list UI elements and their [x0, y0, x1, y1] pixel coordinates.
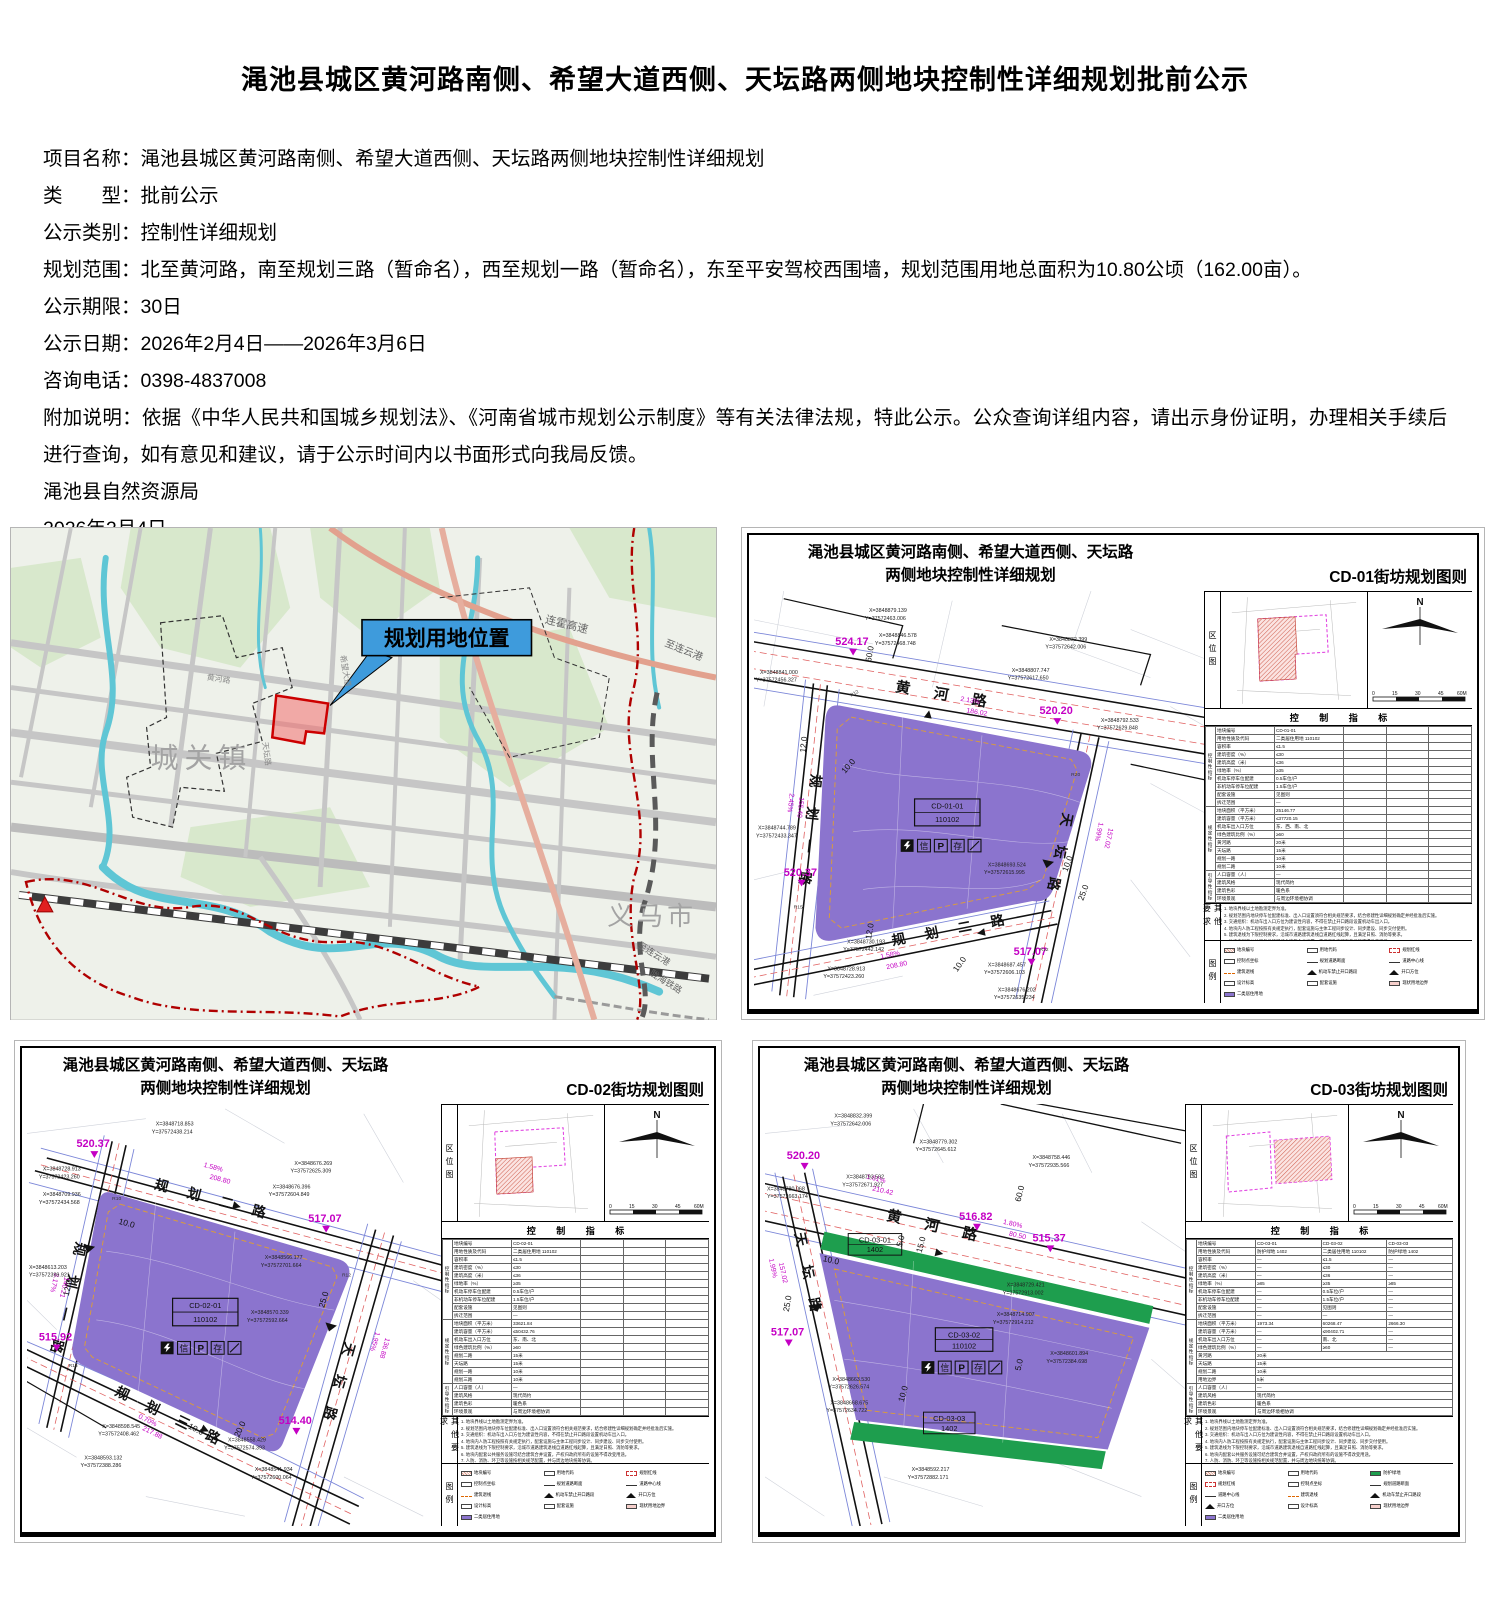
svg-text:Y=37572935.566: Y=37572935.566: [1028, 1163, 1069, 1169]
cd03-map: 黄 河 路 天 坛 路 CD-03-01 1402 CD-03-02 11010…: [765, 1104, 1185, 1526]
svg-text:Y=37572914.212: Y=37572914.212: [993, 1320, 1034, 1326]
svg-text:信: 信: [920, 840, 929, 851]
north-arrow-icon: N: [1353, 1108, 1449, 1160]
svg-text:0: 0: [1353, 1204, 1356, 1210]
location-map: 规划用地位置 城关镇 义马市 连霍高速 至连云港 至连云港 陇海铁路 黄河路 希…: [11, 528, 716, 1020]
svg-text:X=3848779.302: X=3848779.302: [920, 1139, 958, 1145]
svg-text:Y=37572606.103: Y=37572606.103: [984, 970, 1025, 976]
svg-text:N: N: [1416, 597, 1423, 608]
svg-text:存: 存: [974, 1362, 983, 1373]
svg-text:X=3848601.894: X=3848601.894: [1050, 1351, 1088, 1357]
svg-text:10.0: 10.0: [951, 954, 969, 973]
svg-text:Y=37572642.006: Y=37572642.006: [1045, 645, 1086, 651]
svg-text:Y=37572600.064: Y=37572600.064: [251, 1475, 292, 1481]
svg-text:Y=37572626.574: Y=37572626.574: [828, 1385, 869, 1391]
notice-block: 渑池县城区黄河路南侧、希望大道西侧、天坛路两侧地块控制性详细规划批前公示 项目名…: [43, 58, 1447, 548]
svg-text:P: P: [958, 1363, 965, 1374]
cd02-map: 规 划 二 路 规 划 一 路 天 坛 路 规 划 三 路 CD-02-01 1…: [27, 1104, 441, 1526]
svg-text:Y=37572645.612: Y=37572645.612: [916, 1147, 957, 1153]
svg-text:X=3848832.399: X=3848832.399: [834, 1114, 872, 1120]
svg-text:5.0: 5.0: [894, 1234, 907, 1248]
inset-label: 区位图: [1205, 592, 1221, 708]
svg-text:R15: R15: [794, 905, 803, 911]
svg-text:12.0: 12.0: [863, 922, 876, 940]
svg-text:Y=37572438.214: Y=37572438.214: [152, 1129, 193, 1135]
svg-text:X=3848598.545: X=3848598.545: [102, 1424, 140, 1430]
control-table: 控 制 指 标 控制性指标地块编号CD-01-01 用地性质及代码二类居住用地 …: [1205, 709, 1472, 904]
svg-text:45: 45: [1419, 1204, 1425, 1210]
svg-text:1.99%: 1.99%: [767, 1258, 778, 1278]
svg-text:Y=37572663.174: Y=37572663.174: [767, 1194, 808, 1200]
svg-text:30: 30: [1415, 691, 1421, 697]
road-label-huanghe: 黄 河 路: [894, 678, 998, 713]
svg-text:X=3848613.203: X=3848613.203: [29, 1265, 67, 1271]
svg-text:存: 存: [213, 1342, 222, 1353]
svg-text:信: 信: [180, 1342, 189, 1353]
svg-text:110102: 110102: [935, 815, 959, 824]
svg-text:R12: R12: [1039, 947, 1048, 953]
svg-text:Y=37572629.848: Y=37572629.848: [1097, 726, 1138, 732]
svg-text:X=3848570.339: X=3848570.339: [251, 1310, 289, 1316]
svg-text:X=3848541.934: X=3848541.934: [255, 1467, 293, 1473]
legend: 图例 地块编号 用地代码 规划红线 控制点坐标 规划道路断面 道路中心线 建筑退…: [1205, 941, 1472, 1003]
field-category: 公示类别：控制性详细规划: [43, 215, 1447, 252]
north-arrow-icon: N: [1372, 595, 1468, 647]
svg-text:X=3848728.913: X=3848728.913: [43, 1167, 81, 1173]
svg-text:157.02: 157.02: [1102, 827, 1113, 849]
svg-text:CD-02-01: CD-02-01: [189, 1301, 221, 1310]
svg-text:Y=37572384.698: Y=37572384.698: [1046, 1359, 1087, 1365]
svg-text:CD-03-02: CD-03-02: [948, 1331, 980, 1340]
inset-map: [1202, 1105, 1349, 1221]
svg-text:X=3848780.068: X=3848780.068: [767, 1186, 805, 1192]
field-remark: 附加说明：依据《中华人民共和国城乡规划法》、《河南省城市规划公示制度》等有关法律…: [43, 400, 1447, 474]
svg-text:X=3848676.396: X=3848676.396: [273, 1184, 311, 1190]
svg-text:存: 存: [953, 840, 962, 851]
svg-text:N: N: [653, 1110, 660, 1121]
svg-text:X=3848792.533: X=3848792.533: [1101, 718, 1139, 724]
svg-text:X=3848832.399: X=3848832.399: [1049, 637, 1087, 643]
notes: 其他要求 1. 地块界线以土地勘测定界为准。2. 规划范围内地块停车位配建标准、…: [442, 1417, 709, 1464]
svg-text:Y=37572399.921: Y=37572399.921: [29, 1273, 70, 1279]
page-title: 渑池县城区黄河路南侧、希望大道西侧、天坛路两侧地块控制性详细规划批前公示: [43, 58, 1447, 97]
cd02-sidebar: 区位图 N 0 15 30: [441, 1104, 709, 1526]
field-type: 类 型：批前公示: [43, 178, 1447, 215]
svg-text:R20: R20: [1071, 772, 1080, 778]
svg-text:0: 0: [609, 1204, 612, 1210]
svg-text:Y=37572423.260: Y=37572423.260: [823, 974, 864, 980]
svg-text:60M: 60M: [1457, 691, 1467, 697]
cd03-title: 渑池县城区黄河路南侧、希望大道西侧、天坛路两侧地块控制性详细规划: [760, 1054, 1173, 1100]
svg-text:1.99%: 1.99%: [1093, 822, 1104, 842]
svg-text:Y=37572617.650: Y=37572617.650: [1008, 676, 1049, 682]
svg-text:Y=37572882.171: Y=37572882.171: [908, 1475, 949, 1481]
svg-text:X=3848668.675: X=3848668.675: [830, 1400, 868, 1406]
svg-text:Y=37572456.327: Y=37572456.327: [756, 678, 797, 684]
field-project: 项目名称：渑池县城区黄河路南侧、希望大道西侧、天坛路两侧地块控制性详细规划: [43, 141, 1447, 178]
svg-text:X=3848709.936: X=3848709.936: [43, 1192, 81, 1198]
scale-bar: 0 15 30 45 60M: [1351, 1202, 1451, 1218]
svg-text:X=3848687.457: X=3848687.457: [988, 962, 1026, 968]
svg-text:X=3848744.789: X=3848744.789: [758, 826, 796, 832]
svg-text:1.95%: 1.95%: [368, 1331, 380, 1352]
svg-text:P: P: [938, 842, 945, 853]
cd01-panel: 渑池县城区黄河路南侧、希望大道西侧、天坛路两侧地块控制性详细规划 CD-01街坊…: [741, 527, 1485, 1020]
svg-text:1.80%: 1.80%: [1002, 1219, 1023, 1230]
svg-text:110102: 110102: [952, 1341, 976, 1350]
svg-text:45: 45: [675, 1204, 681, 1210]
svg-text:520.37: 520.37: [784, 867, 817, 879]
svg-text:R10: R10: [112, 1196, 121, 1202]
cd01-title: 渑池县城区黄河路南侧、希望大道西侧、天坛路两侧地块控制性详细规划: [749, 541, 1192, 587]
notes: 其他要求 1. 地块界线以土地勘测定界为准。2. 规划范围内地块停车位配建标准、…: [1186, 1417, 1453, 1464]
svg-text:R12: R12: [342, 1273, 351, 1279]
svg-text:X=3848841.000: X=3848841.000: [760, 670, 798, 676]
svg-text:25.0: 25.0: [781, 1294, 794, 1312]
north-scale: N 0 15 30 45 60M: [1349, 1105, 1453, 1221]
svg-text:Y=37572625.309: Y=37572625.309: [290, 1169, 331, 1175]
field-dates: 公示日期：2026年2月4日——2026年3月6日: [43, 326, 1447, 363]
svg-text:15.0: 15.0: [914, 1235, 928, 1254]
svg-text:110102: 110102: [193, 1315, 217, 1324]
svg-text:X=3848730.193: X=3848730.193: [847, 939, 885, 945]
svg-text:X=3848728.913: X=3848728.913: [827, 966, 865, 972]
svg-text:X=3848846.578: X=3848846.578: [879, 633, 917, 639]
svg-text:Y=37572442.142: Y=37572442.142: [843, 947, 884, 953]
svg-text:X=3848676.202: X=3848676.202: [998, 988, 1036, 994]
svg-text:60M: 60M: [1438, 1204, 1448, 1210]
svg-text:X=3848566.177: X=3848566.177: [265, 1255, 303, 1261]
svg-text:X=3848807.747: X=3848807.747: [1012, 668, 1050, 674]
scale-bar: 0 15 30 45 60M: [1370, 689, 1470, 705]
svg-text:15: 15: [1373, 1204, 1379, 1210]
svg-text:X=3848593.132: X=3848593.132: [84, 1455, 122, 1461]
svg-text:15: 15: [629, 1204, 635, 1210]
svg-text:Y=37572701.664: Y=37572701.664: [261, 1263, 302, 1269]
cd03-sidebar: 区位图 N 0 15 30: [1185, 1104, 1453, 1526]
inset-label: 区位图: [1186, 1105, 1202, 1221]
svg-text:45: 45: [1438, 691, 1444, 697]
svg-text:136.88: 136.88: [378, 1337, 391, 1359]
road-label-tiantan: 天 坛 路: [319, 1341, 359, 1430]
svg-text:R12: R12: [849, 689, 860, 699]
field-period: 公示期限：30日: [43, 289, 1447, 326]
svg-text:520.20: 520.20: [787, 1150, 820, 1162]
svg-text:X=3848558.429: X=3848558.429: [228, 1438, 266, 1444]
svg-text:1402: 1402: [867, 1245, 883, 1254]
north-scale: N 0 15 30 45 60M: [605, 1105, 709, 1221]
svg-text:X=3848714.907: X=3848714.907: [997, 1312, 1035, 1318]
svg-text:2.45%: 2.45%: [786, 793, 795, 813]
inset-map: [1221, 592, 1368, 708]
legend: 图例 地块编号 用地代码 规划红线 控制点坐标 规划道路断面 道路中心线 建筑退…: [442, 1464, 709, 1526]
svg-text:0: 0: [1372, 691, 1375, 697]
cd01-sheet-label: CD-01街坊规划图则: [1329, 565, 1467, 587]
svg-text:Y=37572468.748: Y=37572468.748: [875, 641, 916, 647]
scale-bar: 0 15 30 45 60M: [607, 1202, 707, 1218]
legend: 图例 地块编号 用地代码 防护绿地 规划红线 控制点坐标 规划道路断面 道路中心…: [1186, 1464, 1453, 1526]
svg-text:30: 30: [1396, 1204, 1402, 1210]
other-roads: [914, 1104, 1185, 1143]
svg-text:516.82: 516.82: [959, 1211, 992, 1223]
svg-text:CD-01-01: CD-01-01: [931, 802, 963, 811]
svg-text:CD-03-03: CD-03-03: [933, 1414, 965, 1423]
cd02-title: 渑池县城区黄河路南侧、希望大道西侧、天坛路两侧地块控制性详细规划: [22, 1054, 429, 1100]
svg-text:Y=37572388.286: Y=37572388.286: [80, 1463, 121, 1469]
svg-text:P: P: [198, 1344, 205, 1355]
svg-text:520.20: 520.20: [1039, 705, 1072, 717]
svg-text:517.07: 517.07: [308, 1213, 341, 1225]
svg-text:X=3848693.524: X=3848693.524: [988, 862, 1026, 868]
svg-text:515.92: 515.92: [39, 1332, 72, 1344]
north-scale: N 0 15 30 45 60M: [1368, 592, 1472, 708]
svg-text:208.80: 208.80: [209, 1174, 231, 1186]
svg-text:Y=37572634.722: Y=37572634.722: [826, 1408, 867, 1414]
svg-text:N: N: [1397, 1110, 1404, 1121]
svg-text:X=3848663.530: X=3848663.530: [832, 1377, 870, 1383]
svg-text:CD-03-01: CD-03-01: [859, 1235, 891, 1244]
svg-text:Y=37572574.393: Y=37572574.393: [224, 1445, 265, 1451]
svg-text:Y=37572408.462: Y=37572408.462: [98, 1432, 139, 1438]
svg-text:Y=37572433.347: Y=37572433.347: [756, 833, 797, 839]
svg-text:X=3848592.217: X=3848592.217: [912, 1467, 950, 1473]
svg-text:Y=37572423.260: Y=37572423.260: [39, 1175, 80, 1181]
svg-text:Y=37572671.927: Y=37572671.927: [842, 1182, 883, 1188]
svg-text:520.37: 520.37: [77, 1138, 110, 1150]
callout-label: 规划用地位置: [384, 627, 510, 651]
svg-text:25.0: 25.0: [1075, 883, 1090, 902]
svg-text:Y=37572642.006: Y=37572642.006: [830, 1122, 871, 1128]
svg-text:155.40: 155.40: [795, 797, 804, 818]
cd01-sidebar: 区位图 N 0 15 30: [1204, 591, 1472, 1003]
svg-text:60.0: 60.0: [863, 645, 876, 663]
cd03-sheet-label: CD-03街坊规划图则: [1310, 1078, 1448, 1100]
svg-text:X=3848879.139: X=3848879.139: [869, 608, 907, 614]
svg-text:60.0: 60.0: [1013, 1184, 1027, 1202]
svg-text:Y=37572615.995: Y=37572615.995: [984, 870, 1025, 876]
svg-text:Y=37572592.664: Y=37572592.664: [247, 1318, 288, 1324]
svg-text:515.37: 515.37: [1032, 1232, 1065, 1244]
svg-text:517.07: 517.07: [771, 1327, 804, 1339]
control-table: 控 制 指 标 控制性指标地块编号CD-02-01 用地性质及代码二类居住用地 …: [442, 1222, 709, 1417]
cd02-sheet-label: CD-02街坊规划图则: [566, 1078, 704, 1100]
svg-text:30: 30: [652, 1204, 658, 1210]
svg-text:X=3848729.421: X=3848729.421: [1007, 1283, 1045, 1289]
svg-text:15: 15: [1392, 691, 1398, 697]
inset-map: [458, 1105, 605, 1221]
north-arrow-icon: N: [609, 1108, 705, 1160]
control-table: 控 制 指 标 控制性指标地块编号CD-03-01CD-03-02CD-03-0…: [1186, 1222, 1453, 1417]
inset-label: 区位图: [442, 1105, 458, 1221]
svg-text:信: 信: [940, 1362, 949, 1373]
signature: 渑池县自然资源局: [43, 474, 1447, 511]
location-map-panel: 规划用地位置 城关镇 义马市 连霍高速 至连云港 至连云港 陇海铁路 黄河路 希…: [10, 527, 717, 1020]
svg-text:Y=37572635.234: Y=37572635.234: [994, 995, 1035, 1001]
cd03-panel: 渑池县城区黄河路南侧、希望大道西侧、天坛路两侧地块控制性详细规划 CD-03街坊…: [752, 1040, 1466, 1543]
svg-text:1.58%: 1.58%: [203, 1162, 224, 1174]
cd02-panel: 渑池县城区黄河路南侧、希望大道西侧、天坛路两侧地块控制性详细规划 CD-02街坊…: [14, 1040, 722, 1543]
field-phone: 咨询电话：0398-4837008: [43, 363, 1447, 400]
svg-text:514.40: 514.40: [279, 1415, 312, 1427]
svg-text:1402: 1402: [941, 1424, 957, 1433]
svg-text:R15: R15: [69, 1363, 78, 1369]
svg-text:208.80: 208.80: [886, 960, 908, 971]
svg-text:12.0: 12.0: [797, 736, 809, 753]
svg-text:X=3848718.853: X=3848718.853: [156, 1122, 194, 1128]
svg-text:X=3848676.269: X=3848676.269: [294, 1161, 332, 1167]
svg-text:60M: 60M: [694, 1204, 704, 1210]
town-label: 城关镇: [151, 742, 253, 773]
svg-text:Y=37572434.568: Y=37572434.568: [39, 1200, 80, 1206]
svg-text:X=3848758.446: X=3848758.446: [1032, 1155, 1070, 1161]
svg-text:Y=37572913.002: Y=37572913.002: [1003, 1290, 1044, 1296]
svg-text:Y=37572463.006: Y=37572463.006: [865, 616, 906, 622]
field-scope: 规划范围：北至黄河路，南至规划三路（暂命名），西至规划一路（暂命名），东至平安驾…: [43, 252, 1447, 289]
notes: 其他要求 1. 地块界线以土地勘测定界为准。2. 规划范围内地块停车位配建标准、…: [1205, 904, 1472, 941]
svg-text:X=3848793.592: X=3848793.592: [846, 1175, 884, 1181]
cd01-map: 黄 河 路 规 划 一 路 天 坛 路 规 划 二 路 CD-01-01 110…: [754, 591, 1204, 1003]
svg-text:157.02: 157.02: [777, 1262, 788, 1284]
svg-text:Y=37572604.849: Y=37572604.849: [269, 1192, 310, 1198]
city-label: 义马市: [607, 902, 697, 931]
svg-text:524.17: 524.17: [835, 636, 868, 648]
